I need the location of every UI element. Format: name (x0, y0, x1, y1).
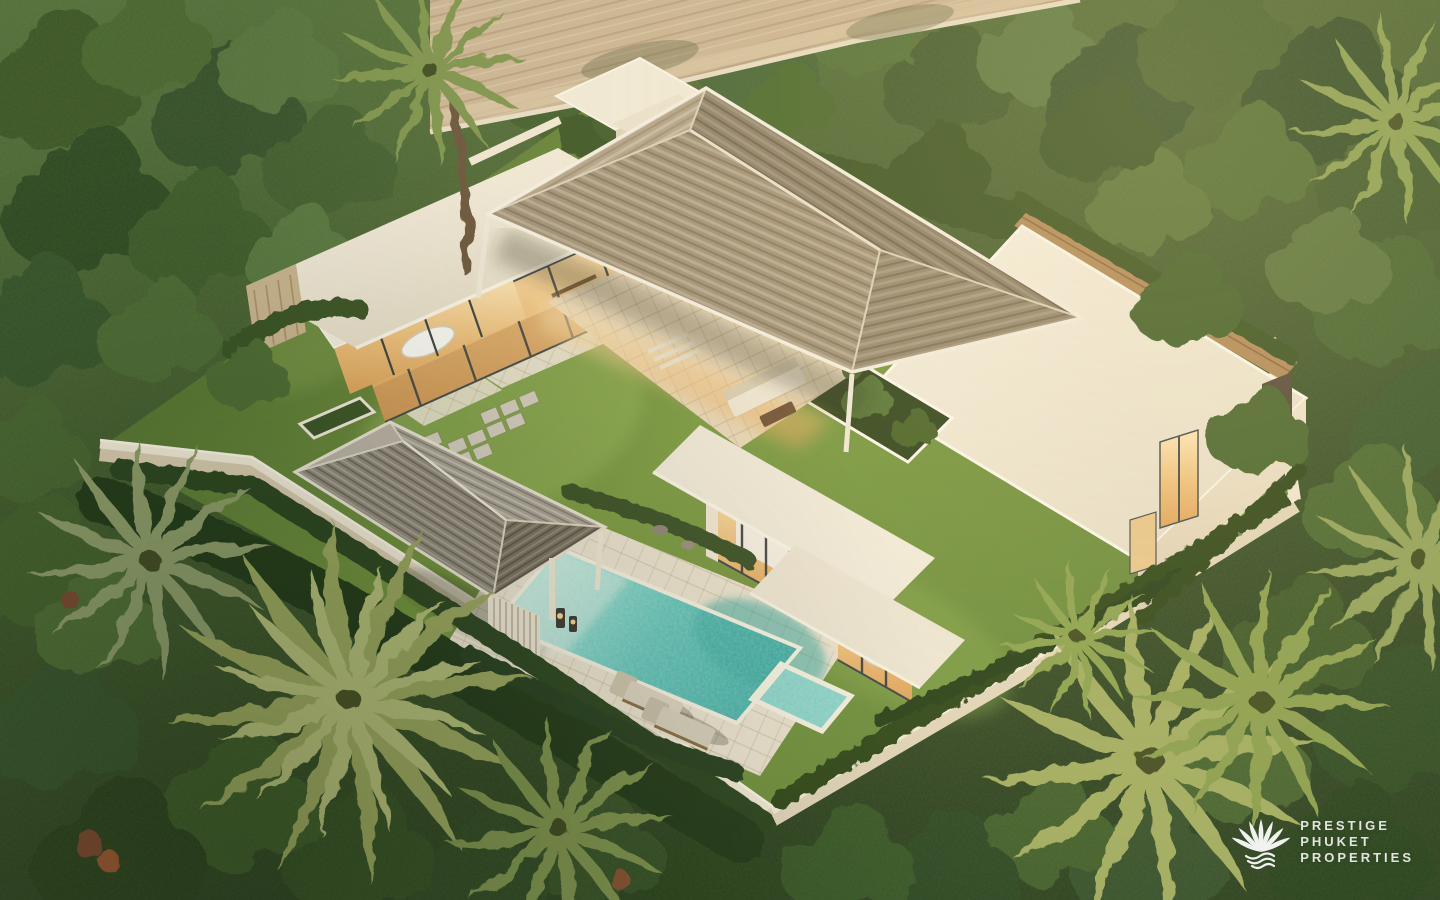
render-canvas (0, 0, 1440, 900)
light-overlays (0, 0, 1440, 900)
shell-logo-icon (1232, 812, 1290, 870)
watermark-line: PRESTIGE (1300, 819, 1414, 832)
watermark-line: PHUKET (1300, 835, 1414, 848)
watermark-text: PRESTIGE PHUKET PROPERTIES (1300, 819, 1414, 864)
villa-aerial-render: PRESTIGE PHUKET PROPERTIES (0, 0, 1440, 900)
watermark-line: PROPERTIES (1300, 851, 1414, 864)
watermark-logo: PRESTIGE PHUKET PROPERTIES (1232, 812, 1414, 870)
